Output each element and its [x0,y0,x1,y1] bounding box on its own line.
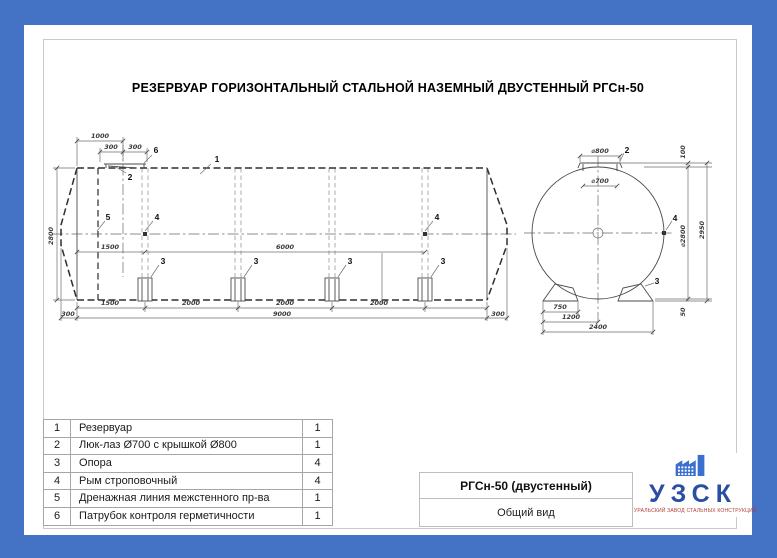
drawing-title: РЕЗЕРВУАР ГОРИЗОНТАЛЬНЫЙ СТАЛЬНОЙ НАЗЕМН… [24,81,752,95]
dim-label: 9000 [273,310,292,318]
dim-label: 300 [61,310,75,318]
callout-label: 4 [155,212,160,222]
part-name: Люк-лаз Ø700 с крышкой Ø800 [71,437,303,455]
lug-marker-right [423,232,427,236]
dim-label: 750 [553,303,567,311]
callout-label: 3 [348,256,353,266]
dim-label: 300 [128,143,142,151]
dim-label: 1200 [562,313,581,321]
callout-label: 3 [441,256,446,266]
part-number: 6 [44,507,71,525]
dim-label: 300 [104,143,118,151]
table-row: 2 Люк-лаз Ø700 с крышкой Ø800 1 [44,437,333,455]
part-name: Рым строповочный [71,472,303,490]
part-qty: 4 [303,472,333,490]
callout-label: 4 [435,212,440,222]
lug-marker-end [662,231,666,235]
end-callout-leaders [620,153,672,286]
dim-label: 2000 [276,299,295,307]
dim-label: 100 [679,145,687,159]
dim-label: ⌀700 [591,177,609,185]
part-number: 1 [44,420,71,438]
dim-label: 1000 [91,132,110,140]
part-number: 3 [44,455,71,473]
part-qty: 1 [303,490,333,508]
table-row: 4 Рым строповочный 4 [44,472,333,490]
table-row: 5 Дренажная линия межстенного пр-ва 1 [44,490,333,508]
model-designation: РГСн-50 (двустенный) [420,473,632,499]
tank-outline [61,168,507,300]
table-row: 6 Патрубок контроля герметичности 1 [44,507,333,525]
callout-label: 3 [254,256,259,266]
part-number: 4 [44,472,71,490]
part-qty: 4 [303,455,333,473]
part-number: 2 [44,437,71,455]
callout-label: 6 [154,145,159,155]
callout-label: 2 [625,145,630,155]
end-view: ⌀800 ⌀700 100 ⌀2800 2950 50 750 1200 240… [524,145,712,335]
part-qty: 1 [303,507,333,525]
dim-label: ⌀2800 [679,225,687,247]
logo-abbr: УЗСК [634,482,746,507]
view-name: Общий вид [420,499,632,527]
callout-label: 4 [673,213,678,223]
callout-label: 3 [161,256,166,266]
title-block: РГСн-50 (двустенный) Общий вид [419,472,633,527]
callout-label: 5 [106,212,111,222]
parts-table: 1 Резервуар 1 2 Люк-лаз Ø700 с крышкой Ø… [43,419,333,526]
lug-marker-left [143,232,147,236]
dim-label: 50 [679,307,687,317]
part-name: Патрубок контроля герметичности [71,507,303,525]
part-name: Резервуар [71,420,303,438]
side-dimensions [53,137,509,321]
callout-label: 1 [215,154,220,164]
dim-label: 2400 [589,323,608,331]
table-row: 3 Опора 4 [44,455,333,473]
part-qty: 1 [303,437,333,455]
dim-label: 2950 [698,220,706,239]
company-logo: УЗСК УРАЛЬСКИЙ ЗАВОД СТАЛЬНЫХ КОНСТРУКЦИ… [634,453,746,517]
drawing-sheet: РЕЗЕРВУАР ГОРИЗОНТАЛЬНЫЙ СТАЛЬНОЙ НАЗЕМН… [24,25,752,535]
callout-label: 3 [655,276,660,286]
support-axes [142,168,428,278]
dim-label: 2000 [182,299,201,307]
dim-label: 1500 [101,299,120,307]
part-qty: 1 [303,420,333,438]
factory-icon [673,453,707,476]
callout-label: 2 [128,172,133,182]
dim-label: 2000 [370,299,389,307]
table-row: 1 Резервуар 1 [44,420,333,438]
part-number: 5 [44,490,71,508]
logo-tagline: УРАЛЬСКИЙ ЗАВОД СТАЛЬНЫХ КОНСТРУКЦИЙ [634,508,746,514]
dim-label: 1500 [101,243,120,251]
part-name: Дренажная линия межстенного пр-ва [71,490,303,508]
dim-label: 6000 [276,243,295,251]
part-name: Опора [71,455,303,473]
supports-side [138,278,432,301]
page: { "heading": "РЕЗЕРВУАР ГОРИЗОНТАЛЬНЫЙ С… [0,0,777,558]
dim-label: 2800 [47,226,55,245]
dim-label: 300 [491,310,505,318]
dim-label: ⌀800 [591,147,609,155]
side-view: 1000 300 300 2800 1500 6000 1500 2000 20… [47,132,516,321]
